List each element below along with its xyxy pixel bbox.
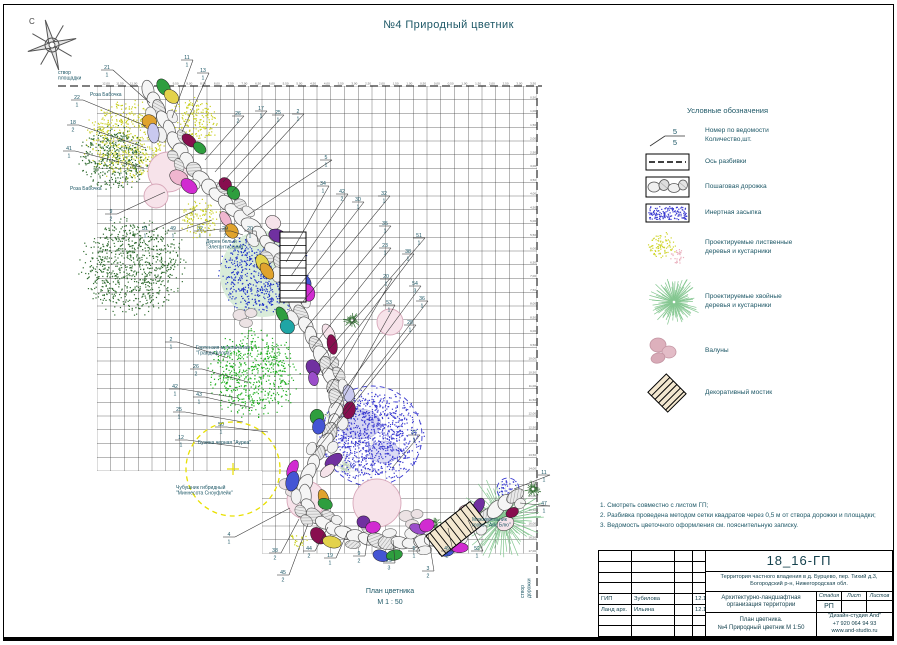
conifer-plants-icon: [645, 273, 703, 331]
note-line: 3. Ведомость цветочного оформления см. п…: [600, 521, 888, 531]
signature-role: ГИП: [599, 594, 632, 604]
svg-text:12,50: 12,50: [528, 425, 536, 429]
signature-name: Ильина: [632, 605, 675, 615]
svg-text:3,50: 3,50: [338, 82, 344, 86]
svg-text:7,00: 7,00: [241, 82, 247, 86]
svg-text:9,00: 9,00: [186, 82, 192, 86]
svg-text:2,50: 2,50: [503, 82, 509, 86]
svg-text:4,00: 4,00: [324, 82, 330, 86]
svg-text:3,00: 3,00: [351, 82, 357, 86]
svg-text:6,50: 6,50: [255, 82, 261, 86]
number-leader-icon: 5 5: [645, 124, 691, 148]
svg-text:7,50: 7,50: [530, 288, 536, 292]
title-block: ГИП Зубилова 12.16 Ланд арх. Ильина 12.1…: [598, 550, 893, 637]
svg-text:5,50: 5,50: [530, 233, 536, 237]
stage-header: Стадия: [817, 592, 842, 601]
svg-text:5,00: 5,00: [530, 219, 536, 223]
legend-item: Декоративный мостик: [645, 371, 873, 415]
svg-text:5,50: 5,50: [283, 82, 289, 86]
svg-text:8,00: 8,00: [214, 82, 220, 86]
legend-item: Валуны: [645, 336, 873, 366]
svg-text:9,00: 9,00: [530, 329, 536, 333]
svg-text:4,50: 4,50: [530, 205, 536, 209]
svg-text:2,00: 2,00: [489, 82, 495, 86]
sheet-header: Лист: [842, 592, 867, 601]
svg-text:1,00: 1,00: [406, 82, 412, 86]
svg-text:11,50: 11,50: [116, 82, 124, 86]
svg-text:6,00: 6,00: [269, 82, 275, 86]
project-address: Территория частного владения в д. Бурцев…: [706, 572, 892, 592]
decorative-bridge-icon: [645, 371, 689, 415]
svg-text:3,50: 3,50: [530, 178, 536, 182]
plan-caption-title: План цветника: [320, 587, 460, 598]
svg-text:0,50: 0,50: [530, 95, 536, 99]
notes: 1. Смотреть совместно с листом ГП; 2. Ра…: [600, 501, 888, 531]
svg-text:8,50: 8,50: [200, 82, 206, 86]
legend-item: 5 5 Номер по ведомости Количество,шт.: [645, 124, 873, 148]
svg-text:7,50: 7,50: [228, 82, 234, 86]
svg-text:7,00: 7,00: [530, 274, 536, 278]
legend-item: Инертная засыпка: [645, 203, 873, 223]
svg-text:1,00: 1,00: [530, 109, 536, 113]
svg-text:9,50: 9,50: [173, 82, 179, 86]
note-line: 2. Разбивка проведена методом сетки квад…: [600, 511, 888, 521]
project-code: 18_16-ГП: [706, 551, 892, 572]
svg-text:2,50: 2,50: [530, 150, 536, 154]
stepping-path-icon: [645, 176, 691, 198]
title-block-signatures: ГИП Зубилова 12.16 Ланд арх. Ильина 12.1…: [599, 551, 706, 636]
signature-date: 12.16: [693, 594, 705, 604]
svg-text:3,00: 3,00: [530, 164, 536, 168]
plan-caption-scale: М 1 : 50: [320, 598, 460, 609]
axis-line-icon: [645, 153, 691, 171]
svg-text:6,00: 6,00: [530, 247, 536, 251]
sheet-title: План цветника. №4 Природный цветник М 1:…: [706, 613, 817, 636]
svg-text:2,00: 2,00: [530, 137, 536, 141]
svg-text:8,50: 8,50: [530, 315, 536, 319]
svg-text:13,00: 13,00: [528, 439, 536, 443]
stage-table: Стадия Лист Листов РП: [817, 592, 892, 613]
studio-info: "Дизайн-студия And" +7 920 064 94 93 www…: [817, 613, 892, 636]
signature-date: 12.16: [693, 605, 705, 615]
svg-text:17,00: 17,00: [528, 549, 536, 553]
svg-text:11,00: 11,00: [130, 82, 138, 86]
svg-text:3,50: 3,50: [530, 82, 536, 86]
svg-text:16,00: 16,00: [528, 522, 536, 526]
svg-text:0,50: 0,50: [420, 82, 426, 86]
svg-text:10,50: 10,50: [528, 370, 536, 374]
svg-text:0,00: 0,00: [434, 82, 440, 86]
svg-text:4,00: 4,00: [530, 192, 536, 196]
legend-title: Условные обозначения: [687, 106, 873, 115]
legend-item: Проектируемые хвойные деревья и кустарни…: [645, 273, 873, 331]
sheets-header: Листов: [867, 592, 892, 601]
svg-text:13,50: 13,50: [528, 453, 536, 457]
svg-text:1,50: 1,50: [393, 82, 399, 86]
svg-text:0,50: 0,50: [448, 82, 454, 86]
note-line: 1. Смотреть совместно с листом ГП;: [600, 501, 888, 511]
svg-text:4,50: 4,50: [310, 82, 316, 86]
drawing-sheet: №4 Природный цветник С 12,0011,5011,0010…: [0, 0, 897, 645]
svg-text:6,50: 6,50: [530, 260, 536, 264]
signature-row: Ланд арх. Ильина 12.16: [599, 605, 705, 616]
plan-caption: План цветника М 1 : 50: [320, 587, 460, 608]
legend: Условные обозначения 5 5 Номер по ведомо…: [645, 106, 873, 420]
signature-role: Ланд арх.: [599, 605, 632, 615]
svg-text:9,50: 9,50: [530, 343, 536, 347]
legend-item: Проектируемые лиственные деревья и куста…: [645, 228, 873, 268]
svg-text:1,50: 1,50: [530, 123, 536, 127]
svg-text:1,50: 1,50: [475, 82, 481, 86]
svg-text:14,00: 14,00: [528, 467, 536, 471]
legend-item: Пошаговая дорожка: [645, 176, 873, 198]
svg-text:11,50: 11,50: [529, 398, 537, 402]
svg-text:11,00: 11,00: [529, 384, 537, 388]
svg-text:2,00: 2,00: [379, 82, 385, 86]
signature-row: ГИП Зубилова 12.16: [599, 594, 705, 605]
project-title: Архитектурно-ландшафтная организация тер…: [706, 592, 817, 613]
svg-text:10,00: 10,00: [528, 357, 536, 361]
svg-text:12,00: 12,00: [528, 412, 536, 416]
svg-text:2,50: 2,50: [365, 82, 371, 86]
stage-value: РП: [817, 601, 842, 613]
svg-text:12,00: 12,00: [102, 82, 110, 86]
signature-name: Зубилова: [632, 594, 675, 604]
inert-infill-icon: [645, 203, 691, 223]
svg-text:5,00: 5,00: [296, 82, 302, 86]
boulders-icon: [645, 336, 681, 366]
svg-text:1,00: 1,00: [461, 82, 467, 86]
legend-item: Ось разбивки: [645, 153, 873, 171]
deciduous-plants-icon: [645, 228, 691, 268]
svg-text:3,00: 3,00: [516, 82, 522, 86]
svg-text:8,00: 8,00: [530, 302, 536, 306]
